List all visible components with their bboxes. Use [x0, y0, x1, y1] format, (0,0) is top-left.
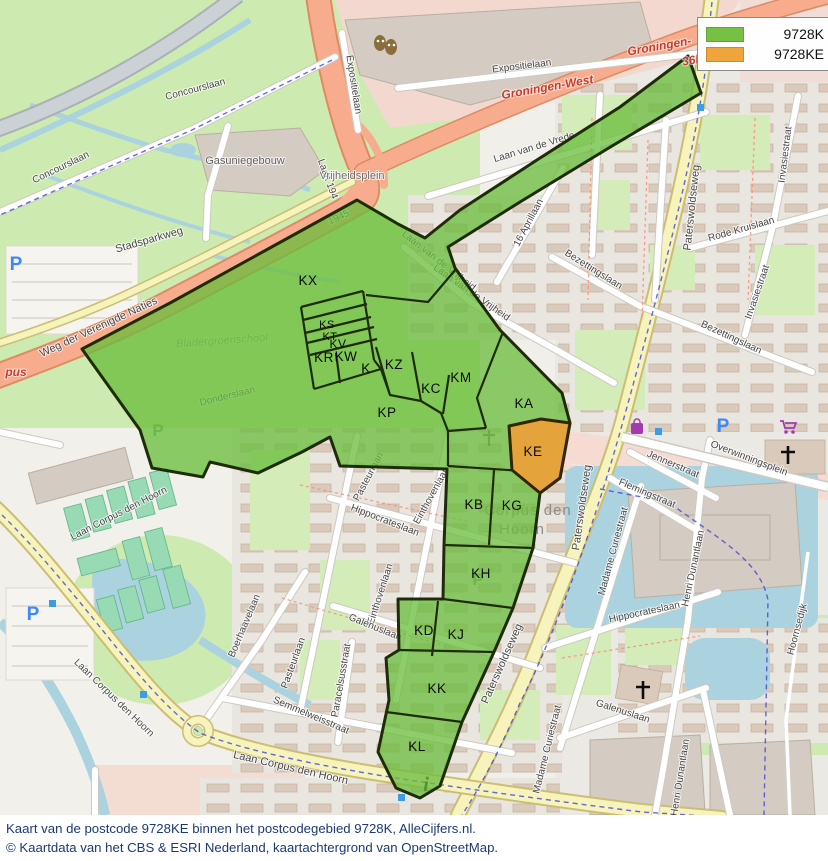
zone-label-kc: KC [421, 381, 441, 396]
zone-label-kd: KD [414, 623, 434, 638]
zone-label-kj: KJ [448, 627, 465, 642]
legend-label: 9728K [752, 26, 824, 42]
place-label-vrijheidsplein: Vrijheidsplein [319, 170, 384, 182]
caption-line-1: Kaart van de postcode 9728KE binnen het … [6, 819, 828, 838]
zone-label-kw: KW [335, 349, 358, 364]
zone-label-kb: KB [464, 497, 483, 512]
zone-label-kk: KK [427, 681, 446, 696]
zone-label-kg: KG [502, 498, 523, 513]
legend-swatch-9728KE [706, 47, 744, 62]
zone-label-ks: KS [319, 319, 335, 331]
zone-label-kl: KL [408, 739, 426, 754]
postcode-map-page: P P P P P i [0, 0, 828, 861]
legend-row: 9728K [706, 24, 824, 44]
zone-label-km: KM [450, 370, 471, 385]
zone-label-ka: KA [514, 396, 533, 411]
caption: Kaart van de postcode 9728KE binnen het … [0, 815, 828, 861]
caption-line-2: © Kaartdata van het CBS & ESRI Nederland… [6, 838, 828, 857]
map-canvas: P P P P P i [0, 0, 828, 815]
zone-label-k: K [361, 361, 371, 376]
place-label-gasuniegebouw: Gasuniegebouw [205, 155, 285, 167]
zone-label-kx: KX [298, 273, 317, 288]
parking-icon: P [717, 416, 730, 437]
highway-label: pus [4, 365, 27, 379]
parking-icon: P [10, 254, 23, 275]
zone-label-kh: KH [471, 566, 491, 581]
zone-label-ke: KE [523, 444, 542, 459]
legend: 9728K 9728KE [697, 17, 828, 71]
parking-icon: P [27, 604, 40, 625]
legend-swatch-9728K [706, 27, 744, 42]
zone-label-kr: KR [314, 350, 334, 365]
legend-row: 9728KE [706, 44, 824, 64]
legend-label: 9728KE [752, 46, 824, 62]
zone-label-kz: KZ [385, 357, 403, 372]
zone-label-kp: KP [377, 405, 396, 420]
